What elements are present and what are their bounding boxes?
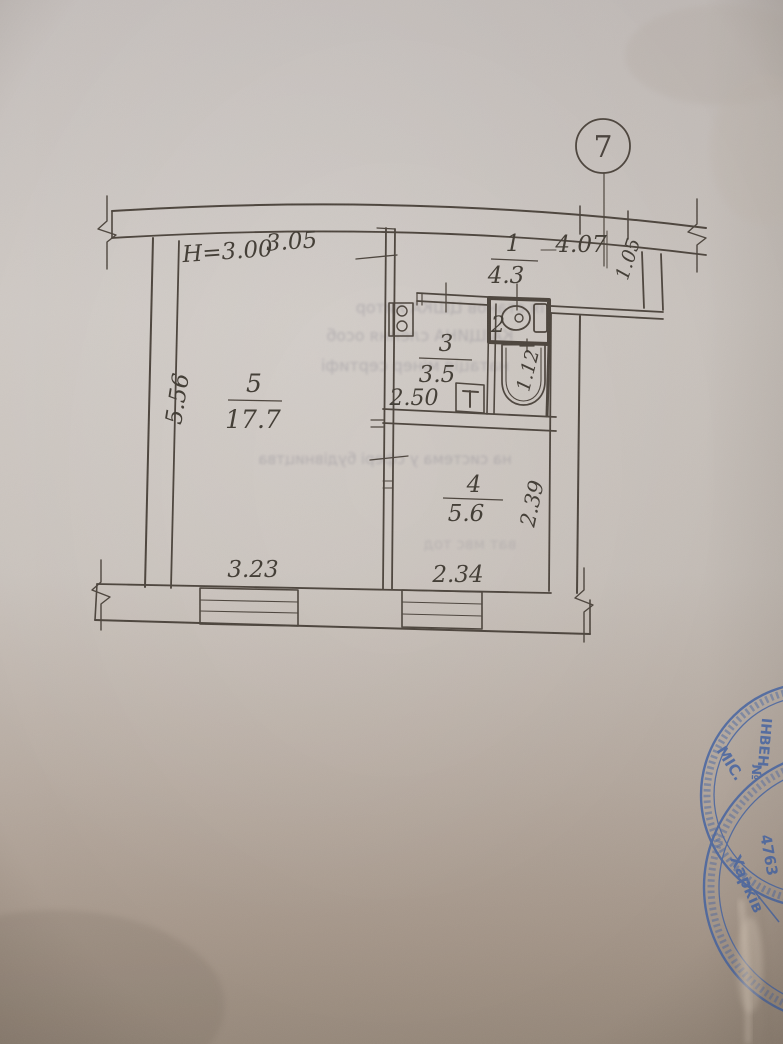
- floor-plan-photo: ія станов ЦШКА литор КАІЩИНА слення особ…: [0, 0, 783, 1044]
- photographed-document: ія станов ЦШКА литор КАІЩИНА слення особ…: [0, 0, 783, 1044]
- film-grain: [0, 0, 783, 1044]
